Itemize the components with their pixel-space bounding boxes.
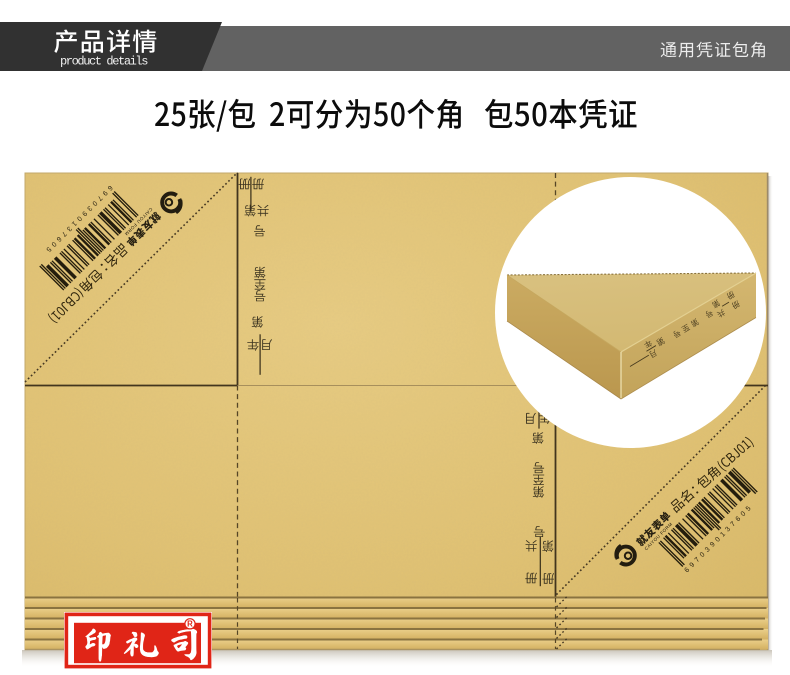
svg-text:product details: product details [60, 55, 148, 69]
svg-text:R: R [187, 620, 193, 629]
